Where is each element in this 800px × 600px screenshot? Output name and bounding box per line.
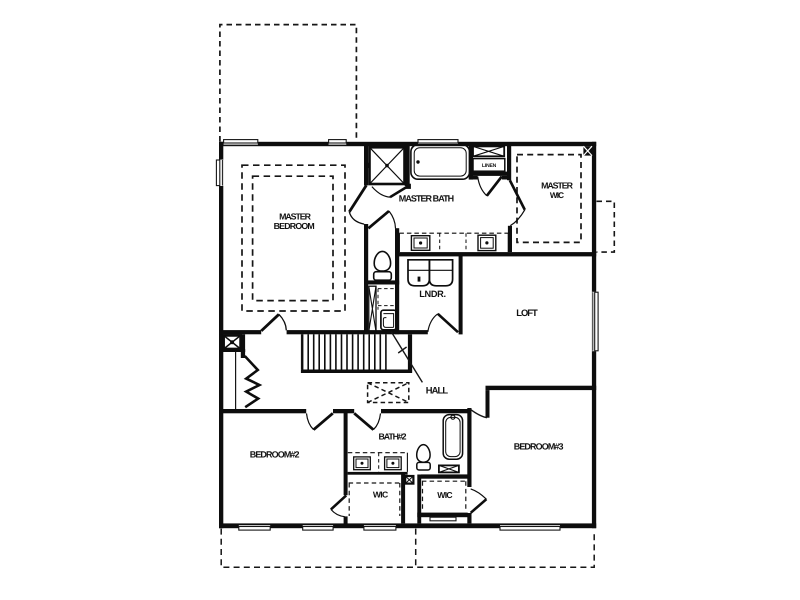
svg-text:LINEN: LINEN: [482, 163, 497, 169]
svg-text:LOFT: LOFT: [516, 307, 538, 318]
svg-text:WIC: WIC: [373, 490, 388, 500]
svg-text:BEDROOM#3: BEDROOM#3: [514, 441, 564, 451]
svg-text:LNDR.: LNDR.: [419, 289, 446, 299]
svg-text:WIC: WIC: [437, 490, 452, 500]
svg-text:BEDROOM: BEDROOM: [274, 221, 315, 231]
svg-text:HALL: HALL: [426, 385, 449, 396]
svg-text:BATH#2: BATH#2: [379, 432, 407, 442]
svg-text:BEDROOM#2: BEDROOM#2: [250, 450, 300, 460]
svg-text:MASTER BATH: MASTER BATH: [399, 194, 454, 204]
svg-text:MASTER: MASTER: [541, 180, 574, 190]
svg-text:MASTER: MASTER: [279, 212, 312, 222]
svg-text:WIC: WIC: [550, 191, 564, 200]
